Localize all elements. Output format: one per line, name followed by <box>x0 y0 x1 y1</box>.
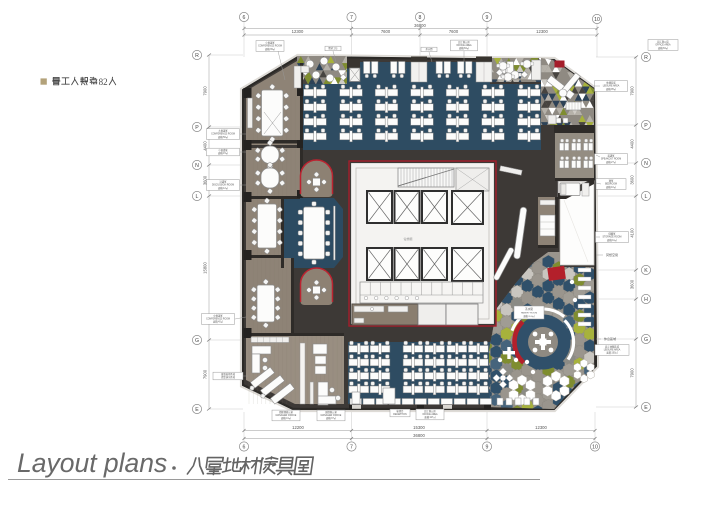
svg-text:PANTRY ROOM: PANTRY ROOM <box>521 312 537 315</box>
svg-text:CONFERENCE ROOM: CONFERENCE ROOM <box>206 319 230 321</box>
svg-text:12300: 12300 <box>535 425 547 430</box>
svg-text:P: P <box>644 123 648 129</box>
svg-text:3600: 3600 <box>630 279 635 289</box>
svg-text:15300: 15300 <box>413 425 425 430</box>
svg-text:LEISURE AREA: LEISURE AREA <box>604 349 621 352</box>
svg-text:6: 6 <box>243 444 246 450</box>
svg-text:OFFICE AREA: OFFICE AREA <box>456 44 472 47</box>
svg-text:10: 10 <box>592 444 598 450</box>
svg-text:L: L <box>645 194 648 200</box>
svg-text:SPEAKOUT ROOM: SPEAKOUT ROOM <box>601 158 621 161</box>
svg-text:CONFERENCE ROOM: CONFERENCE ROOM <box>211 134 235 136</box>
svg-text:Layout plans: Layout plans <box>17 448 167 478</box>
svg-text:9: 9 <box>486 444 489 450</box>
svg-text:電梯廳: 電梯廳 <box>403 236 412 241</box>
svg-text:BEDROOM: BEDROOM <box>605 184 617 186</box>
svg-text:7900: 7900 <box>203 86 208 96</box>
svg-text:12300: 12300 <box>536 29 548 34</box>
svg-text:L: L <box>196 194 199 200</box>
svg-text:7600: 7600 <box>381 29 391 34</box>
svg-text:7900: 7900 <box>203 369 208 379</box>
svg-text:DISCUSSION ROOM: DISCUSSION ROOM <box>212 185 234 187</box>
svg-text:15800: 15800 <box>203 262 208 274</box>
svg-text:R: R <box>644 55 648 61</box>
svg-text:STORAGE ROOM: STORAGE ROOM <box>603 236 622 239</box>
svg-text:7900: 7900 <box>630 368 635 378</box>
svg-text:P: P <box>195 125 199 131</box>
svg-text:MANAGER OFFICE: MANAGER OFFICE <box>321 414 342 417</box>
svg-text:12200: 12200 <box>292 425 304 430</box>
svg-text:9: 9 <box>486 15 489 21</box>
svg-text:G: G <box>644 337 648 343</box>
svg-text:OFFICE AREA: OFFICE AREA <box>655 44 671 47</box>
svg-text:3600: 3600 <box>630 175 635 185</box>
svg-text:10: 10 <box>594 17 600 23</box>
svg-text:36800: 36800 <box>413 433 425 438</box>
svg-text:E: E <box>644 405 648 411</box>
svg-text:CONFERENCE ROOM: CONFERENCE ROOM <box>258 46 282 48</box>
svg-text:4100: 4100 <box>630 228 635 238</box>
svg-text:茶水間: 茶水間 <box>525 307 533 311</box>
svg-text:冥想空間: 冥想空間 <box>606 252 618 257</box>
svg-text:K: K <box>644 268 648 274</box>
svg-text:休息區域: 休息區域 <box>604 336 616 341</box>
svg-text:7: 7 <box>350 15 353 21</box>
svg-text:6: 6 <box>243 15 246 21</box>
svg-text:7900: 7900 <box>630 86 635 96</box>
svg-text:7: 7 <box>350 444 353 450</box>
svg-text:4400: 4400 <box>630 139 635 149</box>
svg-text:82: 82 <box>99 77 108 87</box>
svg-text:OFFICE AREA: OFFICE AREA <box>422 413 438 416</box>
svg-text:N: N <box>644 161 648 167</box>
svg-text:E: E <box>195 407 199 413</box>
svg-text:RECEPTION: RECEPTION <box>393 414 407 416</box>
svg-text:G: G <box>195 338 199 344</box>
svg-text:R: R <box>195 53 199 59</box>
svg-text:H: H <box>644 297 648 303</box>
svg-text:7600: 7600 <box>449 29 459 34</box>
svg-text:36800: 36800 <box>414 23 426 28</box>
svg-text:N: N <box>195 163 199 169</box>
svg-text:8: 8 <box>419 15 422 21</box>
svg-text:LEISURE AREA: LEISURE AREA <box>603 85 620 88</box>
svg-text:MANAGER OFFICE: MANAGER OFFICE <box>276 414 297 417</box>
svg-text:12300: 12300 <box>292 29 304 34</box>
